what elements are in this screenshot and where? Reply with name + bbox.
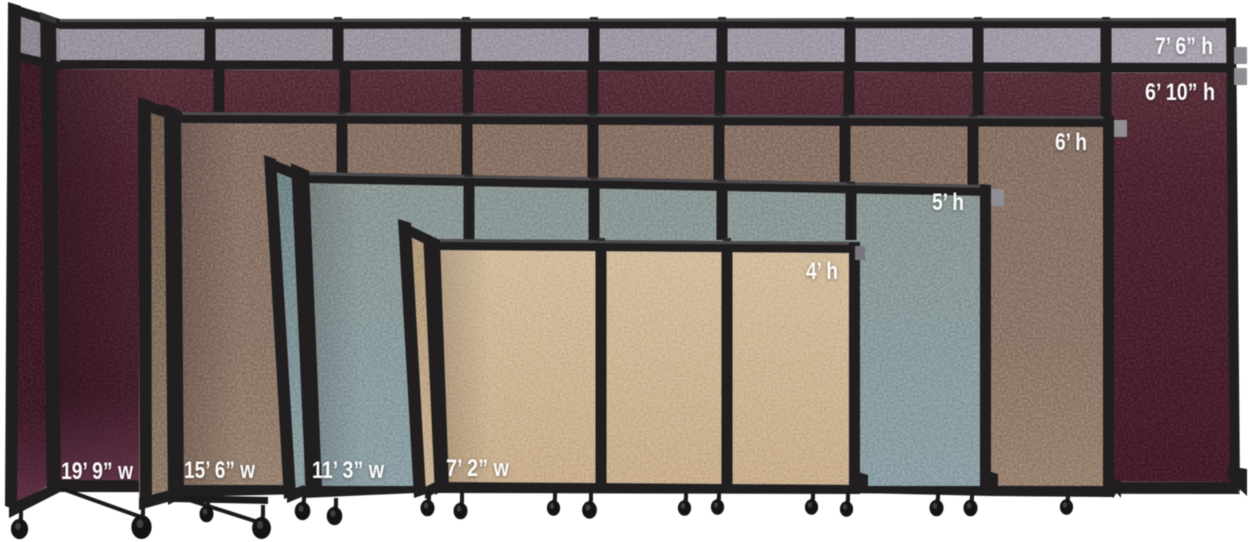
svg-text:7’ 2” w: 7’ 2” w xyxy=(446,455,509,482)
svg-text:7’ 6” h: 7’ 6” h xyxy=(1155,33,1213,60)
svg-text:6’ h: 6’ h xyxy=(1055,129,1087,156)
svg-text:15’ 6” w: 15’ 6” w xyxy=(184,457,255,484)
svg-text:4’ h: 4’ h xyxy=(806,258,838,285)
svg-text:11’ 3” w: 11’ 3” w xyxy=(312,457,384,484)
svg-text:5’ h: 5’ h xyxy=(932,189,964,216)
svg-text:6’ 10” h: 6’ 10” h xyxy=(1145,79,1215,106)
svg-text:19’ 9” w: 19’ 9” w xyxy=(61,458,133,485)
